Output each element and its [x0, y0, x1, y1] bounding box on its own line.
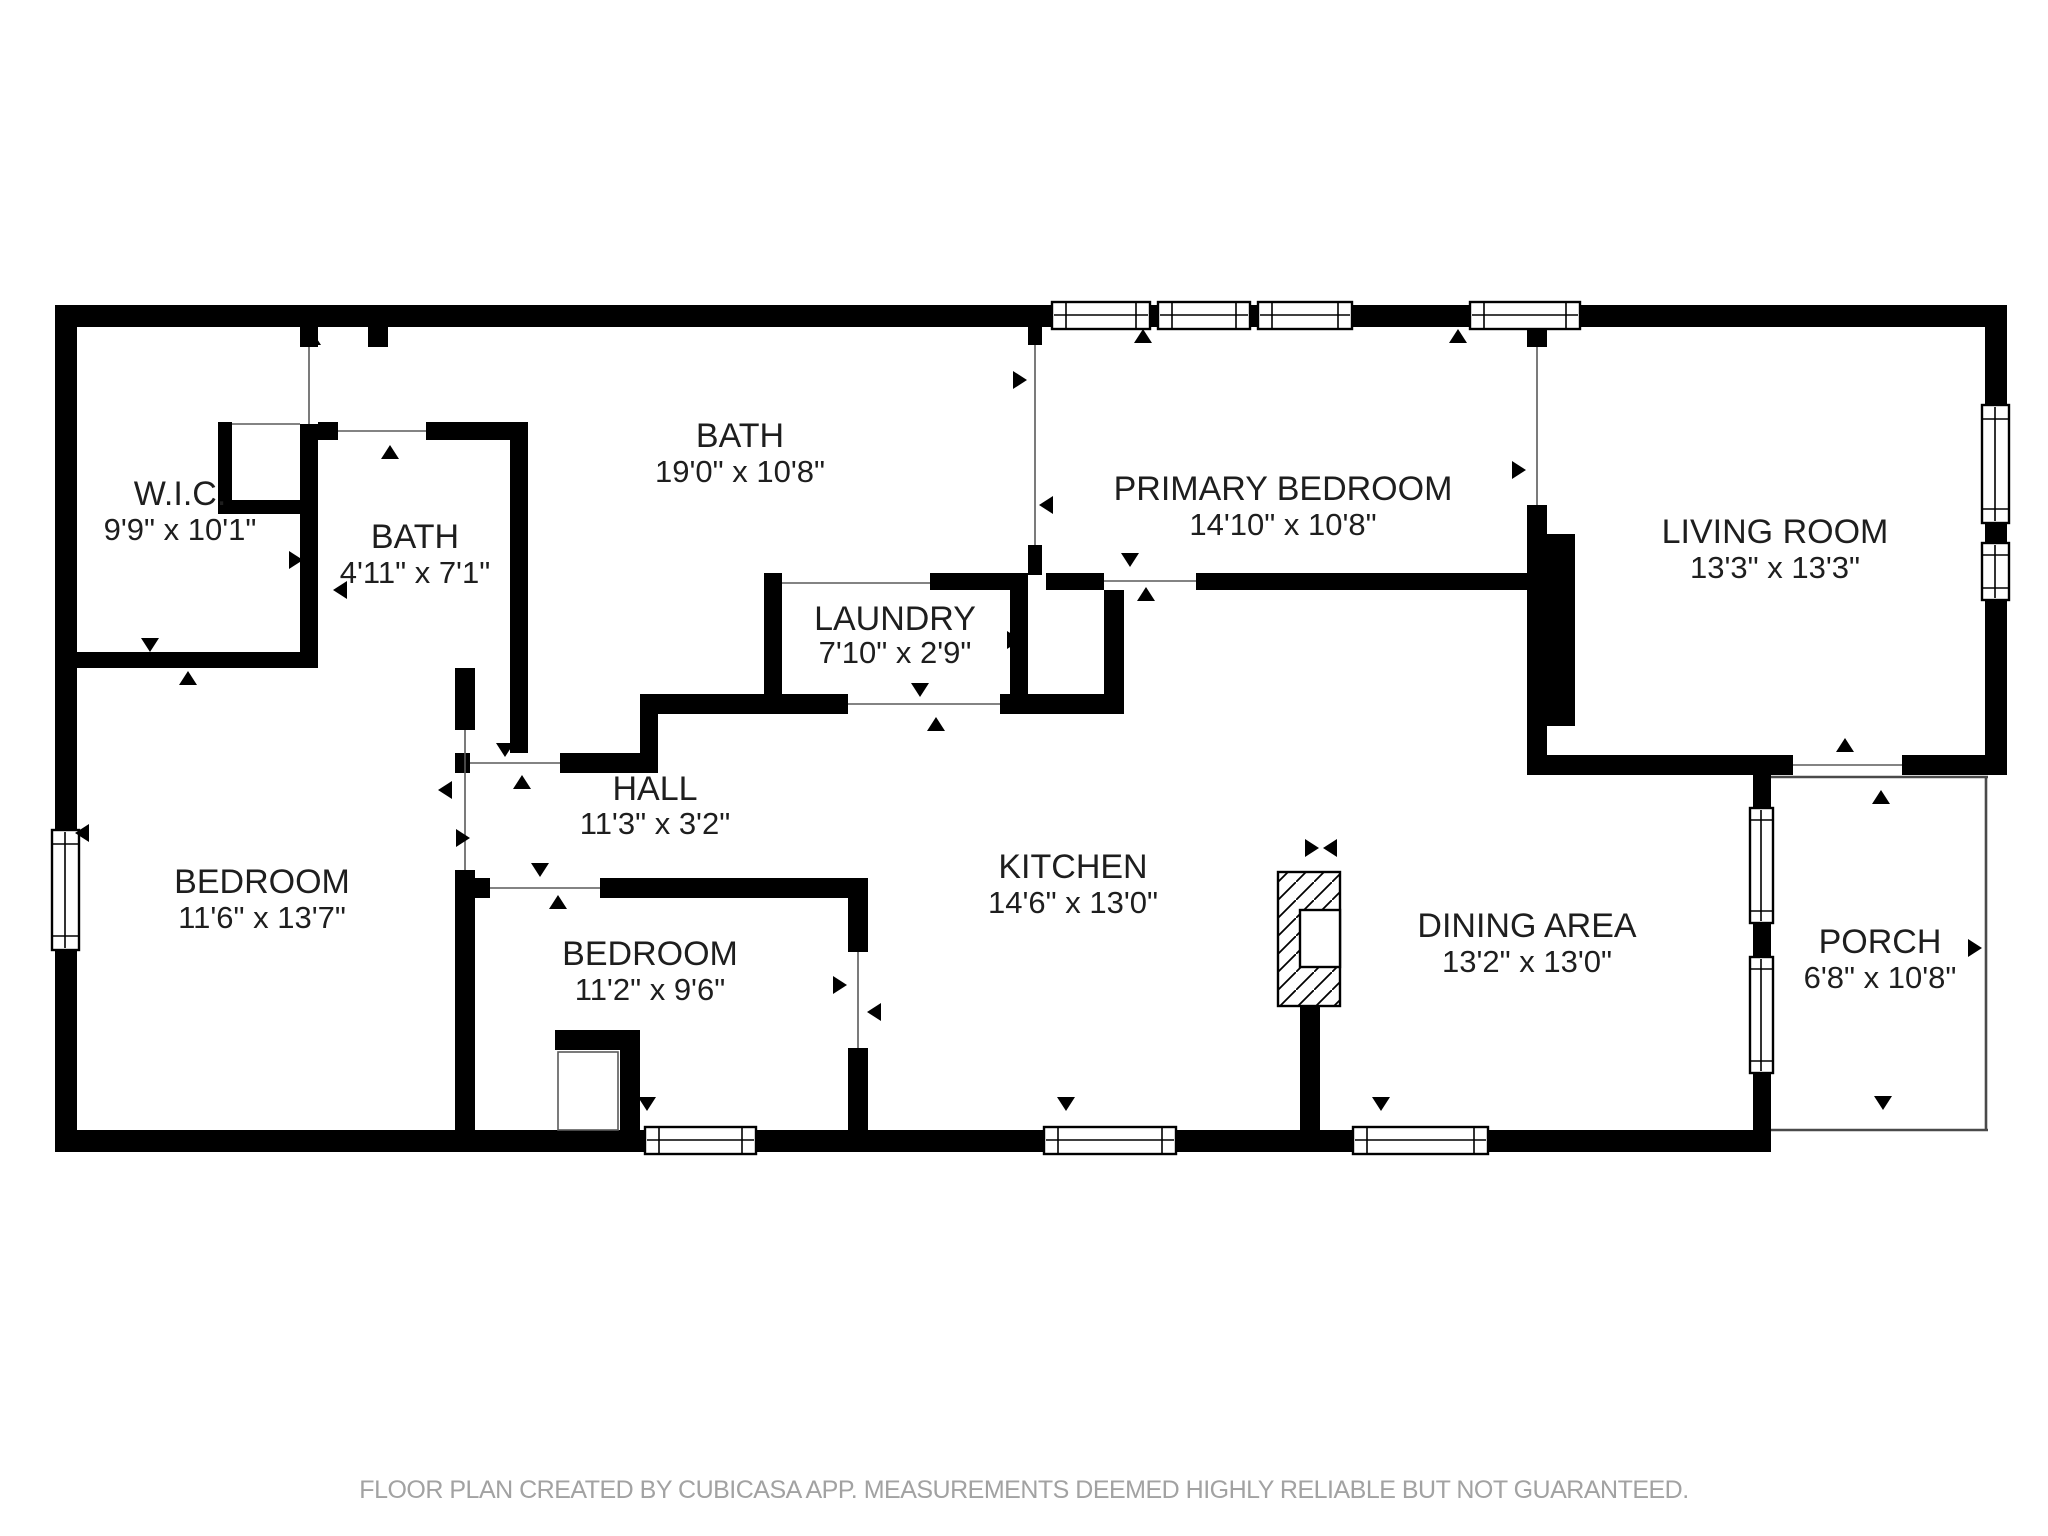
window-icon — [1982, 405, 2009, 523]
wall-segment — [600, 878, 868, 898]
room-dims: 11'3" x 3'2" — [580, 806, 730, 841]
wall-segment — [640, 694, 848, 714]
wall-segment — [368, 325, 388, 347]
room-label-porch: PORCH 6'8" x 10'8" — [1804, 923, 1957, 995]
bowtie-opening-icon — [1323, 839, 1337, 857]
wall-segment — [1028, 322, 1042, 345]
door-arrow-icon — [1013, 371, 1027, 389]
wall-segment — [1753, 923, 1771, 957]
window-icon — [1750, 808, 1773, 923]
room-dims: 6'8" x 10'8" — [1804, 960, 1957, 995]
wall-segment — [1527, 505, 1547, 775]
door-arrow-icon — [513, 775, 531, 789]
room-name: BATH — [696, 417, 784, 455]
wall-segment — [1902, 755, 1985, 775]
door-arrow-icon — [381, 445, 399, 459]
room-dims: 11'2" x 9'6" — [575, 972, 725, 1007]
door-arrow-icon — [1836, 738, 1854, 752]
window-icon — [1353, 1127, 1488, 1154]
door-arrow-icon — [531, 863, 549, 877]
door-arrow-icon — [141, 638, 159, 652]
room-name: BEDROOM — [174, 863, 350, 901]
room-label-bedroom-middle: BEDROOM 11'2" x 9'6" — [562, 935, 738, 1007]
wall-segment — [1028, 545, 1042, 575]
room-name: BATH — [371, 518, 459, 556]
wall-segment — [1985, 305, 2007, 775]
room-label-primary-bedroom: PRIMARY BEDROOM 14'10" x 10'8" — [1114, 470, 1453, 542]
wall-segment — [455, 668, 475, 730]
door-swing-arrows — [61, 329, 1982, 1111]
wall-segment — [55, 305, 77, 1152]
room-name: PRIMARY BEDROOM — [1114, 470, 1453, 508]
door-arrow-icon — [549, 895, 567, 909]
door-openings — [232, 345, 1902, 1130]
room-name: KITCHEN — [998, 848, 1147, 886]
door-arrow-icon — [1057, 1097, 1075, 1111]
wall-segment — [1300, 1006, 1320, 1132]
wall-segment — [1000, 694, 1124, 714]
wall-segment — [455, 870, 475, 1152]
wall-segment — [1196, 573, 1527, 590]
room-dims: 13'3" x 13'3" — [1690, 550, 1860, 585]
wall-segment — [55, 652, 310, 668]
door-arrow-icon — [1372, 1097, 1390, 1111]
room-dims: 11'6" x 13'7" — [178, 900, 346, 935]
room-dims: 7'10" x 2'9" — [819, 635, 972, 670]
room-label-dining-area: DINING AREA 13'2" x 13'0" — [1417, 907, 1636, 979]
door-arrow-icon — [911, 683, 929, 697]
wall-segment — [640, 714, 658, 773]
door-arrow-icon — [833, 976, 847, 994]
door-arrow-icon — [1968, 939, 1982, 957]
wall-segment — [620, 1050, 640, 1132]
window-icon — [1052, 302, 1150, 329]
wall-segment — [1753, 775, 1771, 808]
room-dims: 14'10" x 10'8" — [1189, 507, 1376, 542]
room-dims: 14'6" x 13'0" — [988, 885, 1158, 920]
room-name: PORCH — [1819, 923, 1942, 961]
door-arrow-icon — [1039, 496, 1053, 514]
floor-plan-page: W.I.C. 9'9" x 10'1" BATH 4'11" x 7'1" BA… — [0, 0, 2048, 1536]
door-arrow-icon — [927, 717, 945, 731]
wall-segment — [318, 422, 338, 440]
wall-segment — [848, 878, 868, 952]
room-name: W.I.C. — [134, 475, 227, 513]
window-icon — [1044, 1127, 1176, 1154]
wall-segment — [1046, 573, 1104, 590]
window-icon — [52, 830, 79, 950]
island-inset — [1300, 910, 1340, 967]
door-arrow-icon — [1449, 329, 1467, 343]
wall-segment — [1753, 1073, 1771, 1132]
door-arrow-icon — [1121, 553, 1139, 567]
wall-segment — [555, 1030, 640, 1050]
door-arrow-icon — [438, 781, 452, 799]
window-icon — [1158, 302, 1250, 329]
footer-disclaimer: FLOOR PLAN CREATED BY CUBICASA APP. MEAS… — [359, 1476, 1688, 1504]
window-icon — [1982, 543, 2009, 600]
wall-segment — [848, 1048, 868, 1132]
room-name: DINING AREA — [1417, 907, 1636, 945]
room-dims: 9'9" x 10'1" — [104, 512, 257, 547]
wall-segment — [510, 422, 528, 753]
kitchen-island — [1278, 872, 1340, 1006]
room-name: LAUNDRY — [814, 600, 976, 638]
wall-segment — [1527, 755, 1793, 775]
room-label-bedroom-left: BEDROOM 11'6" x 13'7" — [174, 863, 350, 935]
door-arrow-icon — [638, 1097, 656, 1111]
wall-segment — [300, 424, 318, 668]
door-arrow-icon — [1512, 461, 1526, 479]
room-label-hall: HALL 11'3" x 3'2" — [580, 770, 730, 841]
door-arrow-icon — [456, 829, 470, 847]
door-arrow-icon — [179, 671, 197, 685]
floor-plan-canvas: W.I.C. 9'9" x 10'1" BATH 4'11" x 7'1" BA… — [0, 0, 2048, 1536]
room-label-living-room: LIVING ROOM 13'3" x 13'3" — [1662, 513, 1889, 585]
room-dims: 13'2" x 13'0" — [1442, 944, 1612, 979]
room-label-bath-small: BATH 4'11" x 7'1" — [340, 518, 490, 590]
wall-segment — [1104, 590, 1124, 694]
window-icon — [645, 1127, 756, 1154]
door-arrow-icon — [1872, 790, 1890, 804]
room-label-bath-large: BATH 19'0" x 10'8" — [655, 417, 825, 489]
window-icon — [1750, 957, 1773, 1073]
closet-door-outline — [558, 1052, 618, 1130]
room-dims: 4'11" x 7'1" — [340, 555, 490, 590]
door-arrow-icon — [1137, 587, 1155, 601]
room-label-laundry: LAUNDRY 7'10" x 2'9" — [814, 600, 976, 670]
room-dims: 19'0" x 10'8" — [655, 454, 825, 489]
room-name: LIVING ROOM — [1662, 513, 1889, 551]
bowtie-opening-icon — [1305, 839, 1319, 857]
room-name: HALL — [612, 770, 697, 808]
door-arrow-icon — [1134, 329, 1152, 343]
windows — [52, 302, 2009, 1154]
door-arrow-icon — [1874, 1096, 1892, 1110]
walls — [55, 305, 2007, 1152]
door-arrow-icon — [867, 1003, 881, 1021]
room-name: BEDROOM — [562, 935, 738, 973]
window-icon — [1258, 302, 1352, 329]
room-label-kitchen: KITCHEN 14'6" x 13'0" — [988, 848, 1158, 920]
wall-segment — [1547, 534, 1575, 726]
window-icon — [1470, 302, 1580, 329]
wall-segment — [55, 1130, 1771, 1152]
wall-segment — [455, 753, 470, 773]
